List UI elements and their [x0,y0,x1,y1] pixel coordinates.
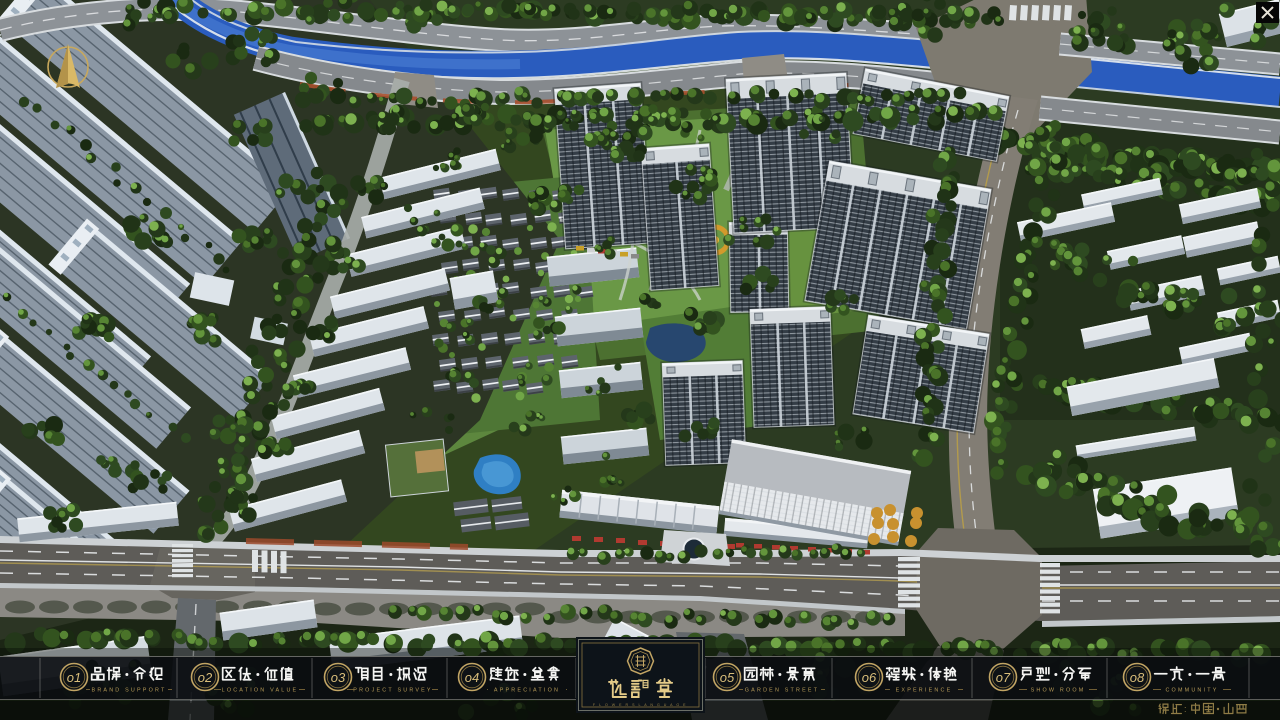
svg-text:APPRECIATION: APPRECIATION [494,688,560,694]
svg-text:LOCATION VALUE: LOCATION VALUE [222,688,299,694]
svg-text:COMMUNITY: COMMUNITY [1165,688,1218,694]
svg-text:EXPERIENCE: EXPERIENCE [896,688,953,694]
svg-text:F L O W E R S L A N G U A G E: F L O W E R S L A N G U A G E [593,703,687,707]
svg-text:o3: o3 [331,670,346,685]
svg-text:SHOW ROOM: SHOW ROOM [1031,688,1086,694]
svg-text:GARDEN STREET: GARDEN STREET [745,688,819,694]
svg-text:PROJECT SURVEY: PROJECT SURVEY [353,688,432,694]
svg-text:o1: o1 [67,670,81,685]
svg-text::: : [1184,704,1187,714]
svg-text:o2: o2 [198,670,213,685]
svg-text:o4: o4 [465,670,479,685]
svg-text:o5: o5 [720,670,735,685]
svg-text:o8: o8 [1130,670,1145,685]
svg-text:BRAND SUPPORT: BRAND SUPPORT [92,688,167,694]
svg-text:o7: o7 [996,670,1011,685]
svg-text:o6: o6 [862,670,877,685]
